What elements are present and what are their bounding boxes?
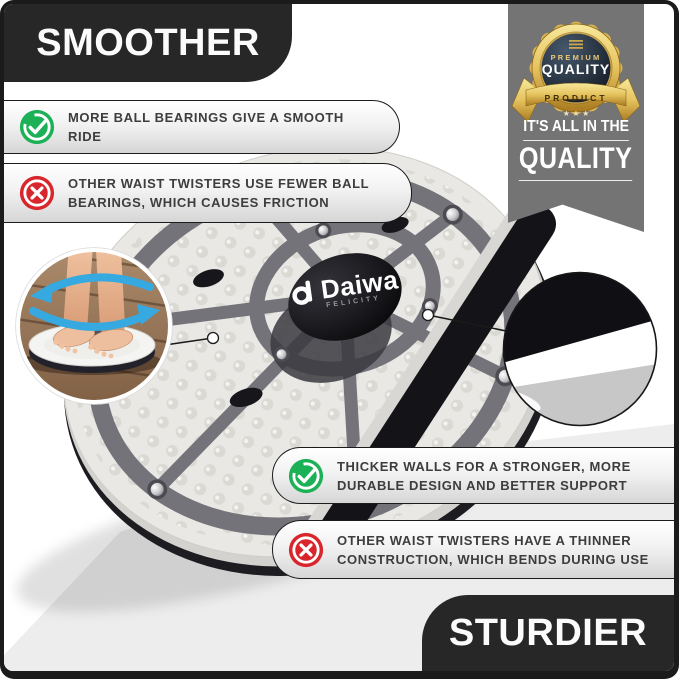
callout-line: CONSTRUCTION, WHICH BENDS DURING USE bbox=[337, 550, 649, 569]
d-logo-icon bbox=[290, 278, 317, 307]
quality-ribbon: PREMIUM QUALITY PRODUCT ★ ★ ★ IT'S ALL I… bbox=[508, 4, 644, 232]
product-infographic: Daiwa FELICITY MORE BALL BEARINGS GIVE A… bbox=[0, 0, 679, 679]
check-icon bbox=[288, 458, 324, 494]
smoother-label: SMOOTHER bbox=[36, 22, 260, 65]
callout-line: BEARINGS, WHICH CAUSES FRICTION bbox=[68, 193, 369, 212]
callout-smooth-pro: MORE BALL BEARINGS GIVE A SMOOTH RIDE bbox=[4, 100, 400, 154]
sturdier-banner: STURDIER bbox=[422, 595, 674, 671]
callout-sturdy-pro: THICKER WALLS FOR A STRONGER, MORE DURAB… bbox=[272, 447, 674, 504]
callout-line: OTHER WAIST TWISTERS HAVE A THINNER bbox=[337, 531, 649, 550]
callout-line: THICKER WALLS FOR A STRONGER, MORE bbox=[337, 457, 631, 476]
callout-line: OTHER WAIST TWISTERS USE FEWER BALL bbox=[68, 174, 369, 193]
callout-sturdy-con: OTHER WAIST TWISTERS HAVE A THINNER CONS… bbox=[272, 520, 674, 579]
callout-smooth-con: OTHER WAIST TWISTERS USE FEWER BALL BEAR… bbox=[4, 163, 412, 223]
ribbon-tagline-1: IT'S ALL IN THE bbox=[508, 118, 644, 141]
check-icon bbox=[19, 109, 55, 145]
smoother-banner: SMOOTHER bbox=[4, 4, 292, 82]
ribbon-tagline-2: QUALITY bbox=[508, 142, 644, 181]
badge-product-label: PRODUCT bbox=[544, 93, 607, 103]
infographic-content: Daiwa FELICITY MORE BALL BEARINGS GIVE A… bbox=[4, 4, 674, 671]
leader-dot-left bbox=[208, 333, 219, 344]
sturdier-label: STURDIER bbox=[449, 612, 647, 655]
cross-icon bbox=[288, 532, 324, 568]
badge-stars: ★ ★ ★ bbox=[563, 109, 590, 118]
cross-icon bbox=[19, 175, 55, 211]
callout-line: DURABLE DESIGN AND BETTER SUPPORT bbox=[337, 476, 631, 495]
callout-line: MORE BALL BEARINGS GIVE A SMOOTH RIDE bbox=[68, 110, 344, 144]
badge-quality-label: QUALITY bbox=[542, 61, 610, 77]
leader-dot-right bbox=[423, 310, 434, 321]
